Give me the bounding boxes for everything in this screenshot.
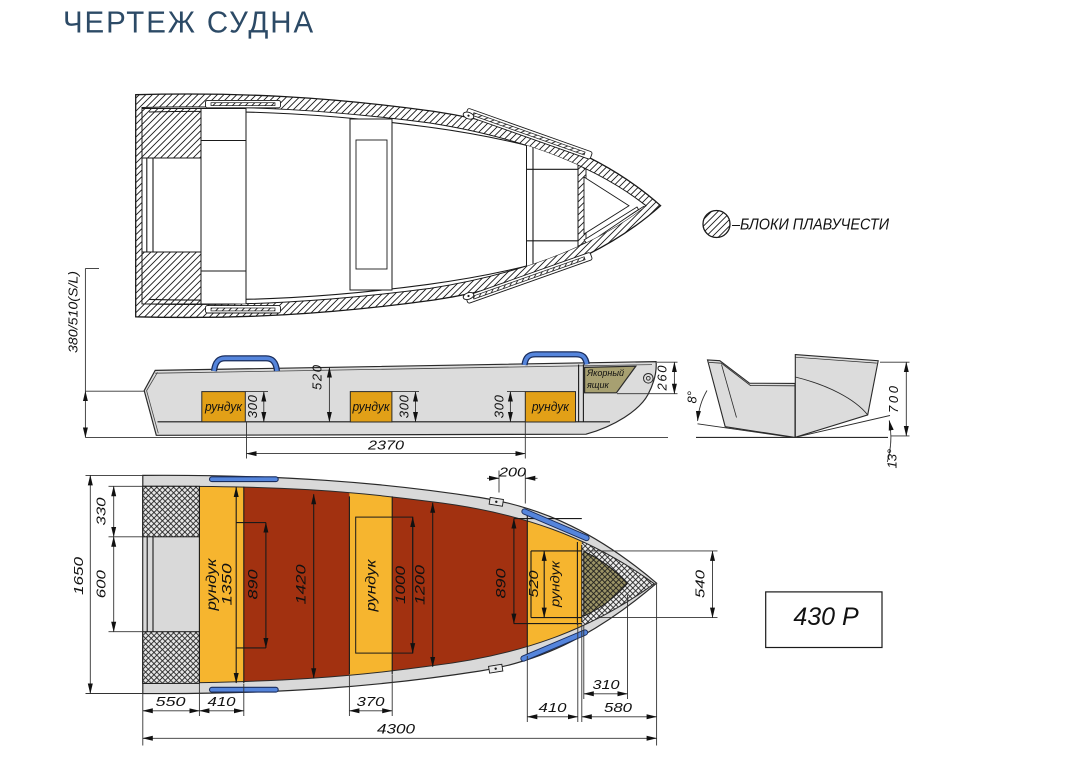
svg-text:260: 260 [655,365,670,392]
svg-text:рундук: рундук [363,558,379,613]
svg-text:ЧЕРТЕЖ СУДНА: ЧЕРТЕЖ СУДНА [63,5,315,40]
svg-text:1000: 1000 [392,566,408,604]
svg-text:540: 540 [692,569,707,598]
svg-text:520: 520 [526,570,541,598]
svg-text:8°: 8° [684,391,699,403]
svg-text:520: 520 [310,364,325,390]
svg-text:330: 330 [93,497,108,526]
svg-text:13°: 13° [885,449,900,469]
svg-text:890: 890 [493,568,509,598]
svg-text:310: 310 [593,677,621,692]
svg-text:580: 580 [604,700,633,715]
svg-text:1350: 1350 [219,563,235,605]
svg-text:1650: 1650 [71,556,86,595]
svg-text:4300: 4300 [377,722,416,737]
svg-text:200: 200 [498,464,527,479]
svg-text:700: 700 [886,385,901,413]
svg-text:рундук: рундук [204,399,243,414]
svg-text:рундук: рундук [531,399,570,414]
svg-text:550: 550 [156,694,187,709]
svg-text:410: 410 [539,700,568,715]
svg-text:Якорный: Якорный [586,368,624,378]
svg-text:–БЛОКИ ПЛАВУЧЕСТИ: –БЛОКИ ПЛАВУЧЕСТИ [731,217,889,234]
svg-text:370: 370 [357,694,386,709]
svg-text:рундук: рундук [203,557,219,612]
svg-text:рундук: рундук [548,560,563,608]
svg-text:380/510(S/L): 380/510(S/L) [66,271,81,353]
svg-text:600: 600 [93,569,108,598]
svg-text:рундук: рундук [352,399,391,414]
svg-text:2370: 2370 [367,437,405,452]
svg-text:410: 410 [208,694,237,709]
svg-text:1420: 1420 [293,564,309,604]
svg-text:430 Р: 430 Р [793,603,859,631]
svg-text:300: 300 [397,394,412,418]
svg-text:300: 300 [491,394,506,418]
svg-text:300: 300 [245,394,260,418]
svg-text:ящик: ящик [586,380,609,390]
svg-text:890: 890 [245,569,261,599]
svg-text:1200: 1200 [412,565,428,605]
